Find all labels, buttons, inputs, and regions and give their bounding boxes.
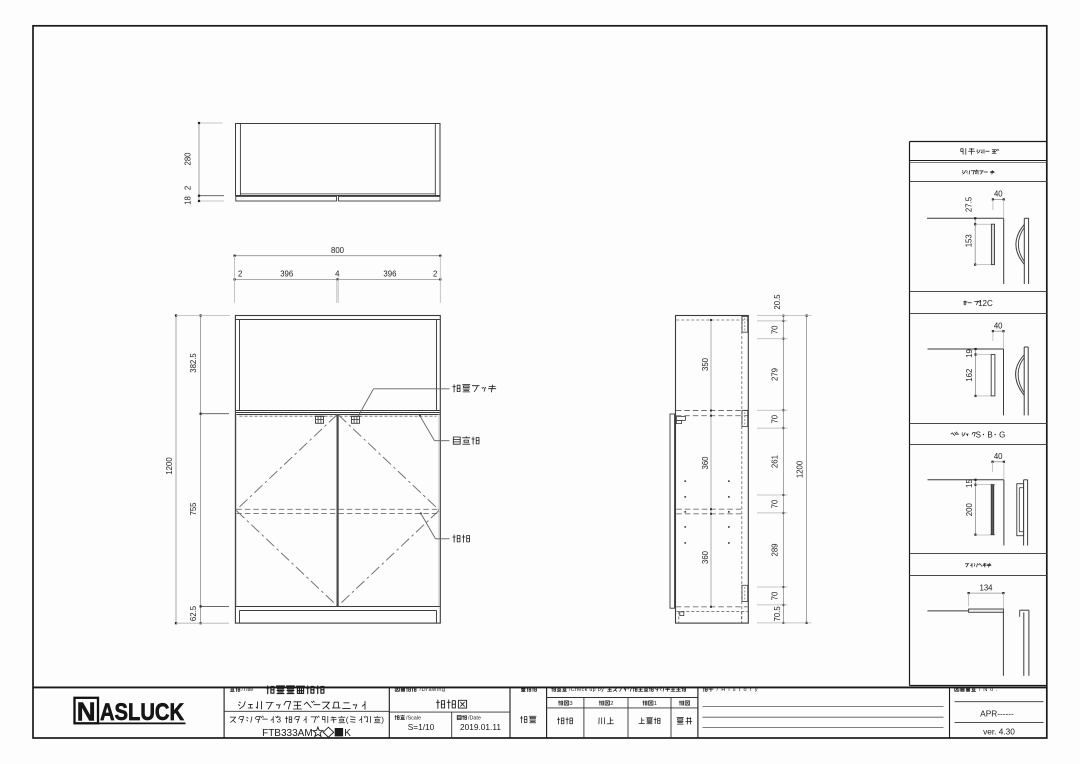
svg-text:396: 396 bbox=[280, 270, 293, 279]
svg-text:70: 70 bbox=[770, 414, 779, 423]
svg-text:/Date: /Date bbox=[468, 715, 481, 721]
svg-text:162: 162 bbox=[965, 369, 974, 382]
svg-text:S=1/10: S=1/10 bbox=[408, 722, 435, 732]
svg-text:800: 800 bbox=[331, 246, 345, 255]
svg-text:12C: 12C bbox=[978, 299, 993, 308]
svg-text:62.5: 62.5 bbox=[189, 605, 198, 621]
svg-text:15: 15 bbox=[965, 479, 974, 488]
svg-text:K: K bbox=[344, 728, 351, 739]
svg-text:20.5: 20.5 bbox=[773, 294, 782, 310]
svg-text:1200: 1200 bbox=[165, 457, 174, 475]
svg-text:382.5: 382.5 bbox=[189, 353, 198, 373]
svg-text:200: 200 bbox=[965, 503, 974, 517]
svg-text:/ H i s t o r y: / H i s t o r y bbox=[717, 687, 759, 693]
svg-text:70: 70 bbox=[770, 325, 779, 334]
svg-text:70: 70 bbox=[770, 591, 779, 600]
svg-text:70: 70 bbox=[770, 499, 779, 508]
svg-text:396: 396 bbox=[383, 270, 396, 279]
svg-text:ASLUCK: ASLUCK bbox=[100, 699, 185, 726]
svg-text:N: N bbox=[77, 697, 96, 727]
svg-text:/Check up by: /Check up by bbox=[569, 687, 604, 693]
svg-text:70.5: 70.5 bbox=[773, 606, 782, 622]
svg-text:4: 4 bbox=[335, 270, 340, 279]
svg-text:): ) bbox=[381, 716, 384, 725]
svg-text:2: 2 bbox=[238, 270, 242, 279]
svg-text:2: 2 bbox=[183, 186, 192, 190]
svg-text:(: ( bbox=[346, 716, 349, 725]
svg-text:360: 360 bbox=[701, 550, 710, 564]
svg-text:ver. 4.30: ver. 4.30 bbox=[983, 727, 1015, 737]
svg-text:APR------: APR------ bbox=[980, 708, 1014, 718]
svg-text:40: 40 bbox=[994, 452, 1003, 461]
svg-text:/Drawing: /Drawing bbox=[420, 687, 446, 693]
svg-text:S: S bbox=[976, 430, 981, 439]
svg-text:/Title: /Title bbox=[242, 687, 254, 693]
svg-text:FTB333AM: FTB333AM bbox=[262, 728, 313, 739]
svg-text:153: 153 bbox=[964, 234, 973, 247]
svg-text:/Scale: /Scale bbox=[406, 715, 421, 721]
svg-text:134: 134 bbox=[979, 583, 993, 592]
svg-text:3: 3 bbox=[569, 701, 572, 707]
svg-text:1200: 1200 bbox=[796, 460, 805, 478]
svg-text:3: 3 bbox=[277, 716, 282, 725]
svg-text:19: 19 bbox=[965, 349, 974, 358]
svg-text:755: 755 bbox=[189, 502, 198, 516]
svg-text:B: B bbox=[987, 430, 992, 439]
svg-text:350: 350 bbox=[701, 357, 710, 371]
svg-text:G: G bbox=[999, 430, 1005, 439]
svg-text:1: 1 bbox=[654, 701, 657, 707]
svg-text:/ N o .: / N o . bbox=[979, 687, 998, 693]
svg-text:2: 2 bbox=[610, 701, 613, 707]
svg-text:27.5: 27.5 bbox=[964, 196, 973, 212]
svg-text:2019.01.11: 2019.01.11 bbox=[460, 722, 501, 732]
svg-text:261: 261 bbox=[770, 455, 779, 468]
svg-text:18: 18 bbox=[183, 196, 192, 205]
svg-text:280: 280 bbox=[183, 152, 192, 166]
svg-text:279: 279 bbox=[770, 368, 779, 381]
svg-text:289: 289 bbox=[770, 543, 779, 556]
svg-text:40: 40 bbox=[994, 190, 1003, 199]
svg-text:40: 40 bbox=[994, 321, 1003, 330]
svg-text:2: 2 bbox=[433, 270, 437, 279]
svg-text:360: 360 bbox=[701, 456, 710, 470]
